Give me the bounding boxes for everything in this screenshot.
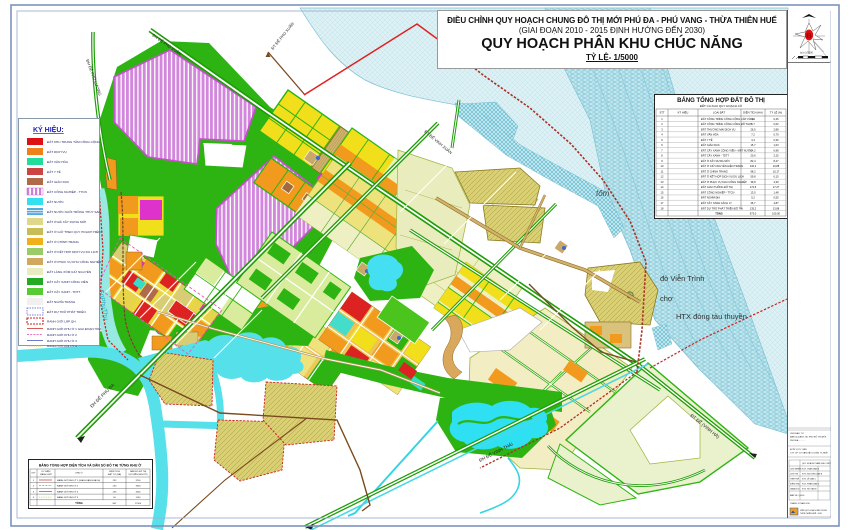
svg-text:0,79: 0,79 (773, 133, 779, 137)
svg-text:3: 3 (33, 491, 35, 493)
svg-text:STT: STT (31, 473, 36, 475)
svg-text:ĐẤT Ở GIỮ THEO QUY HOẠCH HIỆN: ĐẤT Ở GIỮ THEO QUY HOẠCH HIỆN TRẠNG (47, 229, 101, 234)
svg-text:TỔNG: TỔNG (75, 500, 83, 505)
svg-text:16: 16 (661, 196, 664, 200)
svg-text:1,48: 1,48 (773, 190, 779, 194)
svg-text:chợ: chợ (660, 294, 673, 303)
svg-text:5: 5 (661, 138, 663, 142)
svg-text:ĐẤT GIAO THÔNG ĐÔ THỊ: ĐẤT GIAO THÔNG ĐÔ THỊ (701, 184, 733, 189)
svg-text:ĐẤT NƯỚC NUÔI TRỒNG THỦY SẢN: ĐẤT NƯỚC NUÔI TRỒNG THỦY SẢN (47, 209, 101, 214)
svg-text:100,2: 100,2 (750, 164, 757, 168)
svg-text:46,7: 46,7 (750, 201, 756, 205)
svg-text:ĐẤT Ở ĐÃ XÂY DỰNG MỚI: ĐẤT Ở ĐÃ XÂY DỰNG MỚI (47, 219, 86, 224)
svg-text:đò Viễn Trình: đò Viễn Trình (660, 274, 704, 283)
svg-text:THỪA THIÊN HUẾ - 2010: THỪA THIÊN HUẾ - 2010 (800, 512, 822, 515)
svg-text:DIỆN TÍCH: DIỆN TÍCH (109, 470, 120, 473)
svg-text:ĐẤT NƯỚC: ĐẤT NƯỚC (47, 199, 65, 204)
svg-text:ĐẤT Ở CHỈNH TRANG: ĐẤT Ở CHỈNH TRANG (47, 239, 80, 244)
svg-text:5,2: 5,2 (751, 196, 755, 200)
svg-text:8,47: 8,47 (773, 159, 779, 163)
svg-text:8: 8 (661, 154, 663, 158)
svg-text:ĐẤT CÔNG TRÌNH CÔNG CỘNG CẤP V: ĐẤT CÔNG TRÌNH CÔNG CỘNG CẤP VÙNG (701, 116, 754, 121)
svg-text:2,88: 2,88 (773, 127, 779, 131)
svg-text:DỰ KIẾN (NGƯỜI): DỰ KIẾN (NGƯỜI) (129, 473, 148, 476)
svg-text:BẢNG TỔNG HỢP ĐẤT ĐÔ THỊ: BẢNG TỔNG HỢP ĐẤT ĐÔ THỊ (677, 96, 765, 104)
svg-text:RANH GIỚI KHU Ở 1 (GIAI ĐOẠN H: RANH GIỚI KHU Ở 1 (GIAI ĐOẠN HOẠCH) (57, 479, 100, 482)
svg-text:17,27: 17,27 (773, 185, 780, 189)
svg-text:12: 12 (661, 175, 664, 179)
svg-text:ĐẤT CÔNG TRÌNH CÔNG CỘNG ĐÔ TH: ĐẤT CÔNG TRÌNH CÔNG CỘNG ĐÔ THỊN (701, 121, 752, 126)
svg-text:2: 2 (33, 486, 35, 488)
svg-text:7: 7 (661, 148, 663, 152)
svg-text:PHÚ ĐA ... ... ...: PHÚ ĐA ... ... ... (790, 439, 806, 442)
svg-text:0,46: 0,46 (773, 117, 779, 121)
svg-text:20,6: 20,6 (750, 154, 756, 158)
svg-text:2: 2 (661, 122, 663, 126)
svg-text:6,98: 6,98 (773, 148, 779, 152)
svg-text:ĐẤT CÂY XANH CÔNG VIÊN: ĐẤT CÂY XANH CÔNG VIÊN (47, 279, 88, 284)
svg-text:ĐẤT LÀNG XÓM GIỮ NGUYÊN: ĐẤT LÀNG XÓM GIỮ NGUYÊN (47, 269, 91, 274)
svg-text:82,4: 82,4 (750, 159, 756, 163)
svg-text:256: 256 (113, 491, 117, 493)
svg-text:15,7: 15,7 (750, 143, 756, 147)
svg-text:BẢNG TỔNG HỢP DIỆN TÍCH VÀ DÂN: BẢNG TỔNG HỢP DIỆN TÍCH VÀ DÂN SỐ ĐÔ THỊ… (39, 463, 141, 468)
svg-text:ĐẤT Y TẾ: ĐẤT Y TẾ (47, 169, 61, 174)
svg-text:6: 6 (661, 143, 663, 147)
svg-text:ĐẤT Ở KẾT HỢP DỊCH VỤ DU LỊCH: ĐẤT Ở KẾT HỢP DỊCH VỤ DU LỊCH (47, 249, 98, 254)
svg-text:ĐẤT VĂN HÓA: ĐẤT VĂN HÓA (701, 132, 719, 137)
svg-text:GIÁM ĐỐC: GIÁM ĐỐC (790, 488, 801, 491)
svg-text:ĐẤT NGHĨA ĐỊA: ĐẤT NGHĨA ĐỊA (701, 195, 720, 200)
svg-text:ĐẤT CÂY XANH CÔNG VIÊN - MẶT N: ĐẤT CÂY XANH CÔNG VIÊN - MẶT NƯỚC (701, 147, 752, 152)
svg-text:64,2: 64,2 (750, 148, 756, 152)
svg-text:ĐẤT Ở PHỤC VỤ KHU CÔNG NGHIỆP: ĐẤT Ở PHỤC VỤ KHU CÔNG NGHIỆP (47, 259, 101, 264)
svg-text:ĐẤT THƯƠNG MẠI DỊCH VỤ: ĐẤT THƯƠNG MẠI DỊCH VỤ (701, 126, 735, 131)
svg-text:ĐẤT Ở CHỈNH TRANG: ĐẤT Ở CHỈNH TRANG (701, 168, 728, 173)
svg-text:RANH GIỚI KHU Ở 4: RANH GIỚI KHU Ở 4 (57, 496, 79, 499)
svg-text:HTX đóng tàu thuyền: HTX đóng tàu thuyền (676, 312, 747, 321)
svg-text:100,00: 100,00 (772, 212, 780, 216)
svg-text:6,15: 6,15 (773, 175, 779, 179)
svg-text:10: 10 (661, 164, 664, 168)
svg-text:RANH GIỚI KHU Ở 2: RANH GIỚI KHU Ở 2 (47, 332, 77, 337)
svg-text:KÝ HIỆU: KÝ HIỆU (42, 470, 51, 473)
svg-text:4: 4 (33, 497, 35, 499)
svg-text:0,36: 0,36 (773, 138, 779, 142)
svg-text:TỔNG: TỔNG (715, 211, 723, 216)
svg-text:1,63: 1,63 (773, 143, 779, 147)
svg-text:ĐẤT Ở GIỮ NGUYÊN HIỆN TRẠNG: ĐẤT Ở GIỮ NGUYÊN HIỆN TRẠNG (701, 163, 743, 168)
svg-text:B: B (806, 31, 812, 40)
svg-text:11: 11 (661, 169, 664, 173)
svg-text:ĐẤT DỊCH VỤ: ĐẤT DỊCH VỤ (47, 150, 67, 154)
svg-text:KTS. HỒ VĂN E: KTS. HỒ VĂN E (802, 488, 817, 491)
svg-text:CTY CP TƯ VẤN XÂY DỰNG TT-HUẾ: CTY CP TƯ VẤN XÂY DỰNG TT-HUẾ (790, 452, 828, 455)
svg-text:STT: STT (659, 111, 664, 115)
svg-text:252: 252 (113, 480, 117, 482)
svg-text:172,6: 172,6 (750, 185, 757, 189)
svg-text:26,5: 26,5 (750, 127, 756, 131)
svg-text:4,2: 4,2 (751, 117, 755, 121)
svg-text:ĐẤT VĂN HÓA: ĐẤT VĂN HÓA (47, 159, 69, 164)
svg-text:THÁNG 12 NĂM 2010: THÁNG 12 NĂM 2010 (790, 502, 811, 505)
svg-text:3: 3 (661, 127, 663, 131)
svg-text:0,62: 0,62 (773, 122, 779, 126)
svg-text:1: 1 (661, 117, 663, 121)
svg-text:3700: 3700 (136, 480, 142, 482)
svg-text:1100: 1100 (136, 497, 141, 499)
svg-text:KHU Ở: KHU Ở (75, 472, 82, 475)
svg-text:2,25: 2,25 (773, 154, 779, 158)
svg-text:KTS. TRẦN VĂN A: KTS. TRẦN VĂN A (802, 468, 820, 471)
svg-text:RANH GIỚI: RANH GIỚI (40, 473, 52, 476)
svg-text:4,87: 4,87 (773, 201, 779, 205)
svg-text:0,55: 0,55 (773, 196, 779, 200)
svg-text:BẢN VẼ: QH-05: BẢN VẼ: QH-05 (790, 494, 805, 497)
svg-text:230: 230 (113, 486, 117, 488)
svg-text:KÝ HIỆU:: KÝ HIỆU: (33, 125, 64, 134)
svg-text:KÝ HIỆU: KÝ HIỆU (678, 110, 689, 115)
svg-text:RANH GIỚI KHU Ở 2: RANH GIỚI KHU Ở 2 (57, 485, 79, 488)
svg-text:ĐẤT CÂY XANH CÁCH LY: ĐẤT CÂY XANH CÁCH LY (701, 200, 732, 205)
svg-text:ĐẤT CÂY XANH - TDTT: ĐẤT CÂY XANH - TDTT (47, 290, 80, 294)
svg-text:ĐẤT Ở XÂY DỰNG MỚI: ĐẤT Ở XÂY DỰNG MỚI (701, 158, 730, 163)
svg-text:1: 1 (33, 480, 35, 482)
svg-text:ĐẤT GIÁO DỤC: ĐẤT GIÁO DỤC (47, 180, 70, 184)
svg-text:ĐẤT TỰ (HA): ĐẤT TỰ (HA) (108, 473, 121, 476)
svg-text:15: 15 (661, 190, 664, 194)
svg-text:14: 14 (661, 185, 664, 189)
svg-text:CHỦ ĐẦU TƯ: CHỦ ĐẦU TƯ (790, 432, 804, 435)
svg-text:13,88: 13,88 (773, 206, 780, 210)
svg-text:VIỆN QUY HOẠCH XÂY DỰNG: VIỆN QUY HOẠCH XÂY DỰNG (800, 509, 827, 512)
svg-text:KIỂM TRA: KIỂM TRA (790, 483, 800, 486)
svg-text:DÂN SỐ ĐÔ THỊ: DÂN SỐ ĐÔ THỊ (130, 470, 147, 473)
svg-text:TỶ LỆ (%): TỶ LỆ (%) (770, 110, 782, 115)
svg-text:7,2: 7,2 (751, 133, 755, 137)
svg-text:4400: 4400 (136, 491, 142, 493)
svg-text:RANH GIỚI KHU Ở 3: RANH GIỚI KHU Ở 3 (57, 490, 79, 493)
svg-text:DIỆN TÍCH (HA): DIỆN TÍCH (HA) (743, 110, 763, 115)
svg-text:tôm: tôm (596, 189, 610, 198)
svg-text:KTS. PHAN VĂN D: KTS. PHAN VĂN D (802, 483, 820, 486)
svg-text:50: 50 (113, 497, 116, 499)
svg-text:RANH GIỚI KHU Ở 3: RANH GIỚI KHU Ở 3 (47, 338, 77, 343)
svg-text:BAN QLDA ĐT-XD KHU ĐÔ THỊ MỚI: BAN QLDA ĐT-XD KHU ĐÔ THỊ MỚI (790, 436, 827, 439)
svg-text:ĐẤT CÔNG NGHIỆP - TTCN: ĐẤT CÔNG NGHIỆP - TTCN (701, 189, 735, 194)
svg-text:RANH GIỚI KHU Ở 4: RANH GIỚI KHU Ở 4 (47, 344, 77, 348)
svg-text:RANH GIỚI LẬP QH: RANH GIỚI LẬP QH (47, 319, 76, 324)
svg-text:841: 841 (113, 503, 117, 505)
svg-text:CHỦ NHIỆM: CHỦ NHIỆM (790, 468, 802, 471)
svg-text:ĐẤT NGHĨA TRANG: ĐẤT NGHĨA TRANG (47, 299, 76, 304)
svg-text:KTS. NGUYỄN VĂN B: KTS. NGUYỄN VĂN B (802, 473, 823, 476)
svg-text:3,4: 3,4 (751, 138, 755, 142)
svg-text:LOẠI ĐẤT: LOẠI ĐẤT (713, 111, 726, 115)
svg-text:973,0: 973,0 (750, 212, 757, 216)
svg-text:5,7: 5,7 (751, 122, 755, 126)
svg-text:10,17: 10,17 (773, 169, 780, 173)
svg-text:ĐẤT KHU TRUNG TÂM CÔNG CỘNG: ĐẤT KHU TRUNG TÂM CÔNG CỘNG (47, 139, 101, 144)
svg-text:9: 9 (661, 159, 663, 163)
svg-text:17500: 17500 (135, 503, 142, 505)
svg-text:ĐƠN VỊ TƯ VẤN: ĐƠN VỊ TƯ VẤN (790, 448, 807, 451)
svg-text:13: 13 (661, 180, 664, 184)
svg-text:ĐẤT CÔNG NGHIỆP - TTCN: ĐẤT CÔNG NGHIỆP - TTCN (47, 189, 87, 194)
svg-text:3300: 3300 (136, 486, 142, 488)
svg-text:ĐẤT Ở KẾT HỢP DỊCH VỤ DU LỊCH: ĐẤT Ở KẾT HỢP DỊCH VỤ DU LỊCH (701, 174, 744, 179)
svg-text:CHỦ TRÌ: CHỦ TRÌ (790, 473, 799, 476)
svg-text:QUY HOẠCH PHÂN KHU CHỨC NĂNG: QUY HOẠCH PHÂN KHU CHỨC NĂNG (802, 462, 831, 465)
svg-text:ĐẤT Ở PHỤC VỤ KHU CÔNG NGHIỆP: ĐẤT Ở PHỤC VỤ KHU CÔNG NGHIỆP (701, 179, 747, 184)
svg-text:39,8: 39,8 (750, 180, 756, 184)
svg-text:ĐẤT DỰ TRỮ PHÁT TRIỂN: ĐẤT DỰ TRỮ PHÁT TRIỂN (47, 309, 86, 314)
svg-text:ty le 1/5000: ty le 1/5000 (800, 52, 814, 55)
svg-text:17: 17 (661, 201, 664, 205)
svg-text:13,5: 13,5 (750, 190, 756, 194)
svg-text:THIẾT KẾ: THIẾT KẾ (790, 478, 800, 481)
svg-text:ĐẾT CẢ KHU QUY HOẠCH CŨ: ĐẾT CẢ KHU QUY HOẠCH CŨ (700, 103, 742, 108)
svg-text:98,2: 98,2 (750, 169, 756, 173)
svg-text:KTS. LÊ VĂN C: KTS. LÊ VĂN C (802, 478, 817, 481)
svg-text:59,8: 59,8 (750, 175, 756, 179)
svg-text:ĐẤT DỰ TRỮ PHÁT TRIỂN ĐÔ THỊ: ĐẤT DỰ TRỮ PHÁT TRIỂN ĐÔ THỊ (701, 205, 743, 210)
svg-text:4,39: 4,39 (773, 180, 779, 184)
svg-text:18: 18 (661, 206, 664, 210)
svg-text:135,2: 135,2 (750, 206, 757, 210)
svg-text:RANH GIỚI KHU Ở 1 GIAI ĐOẠN HO: RANH GIỚI KHU Ở 1 GIAI ĐOẠN HOẠCH (47, 326, 101, 331)
svg-text:ĐẤT CÂY XANH - TDTT: ĐẤT CÂY XANH - TDTT (701, 153, 729, 158)
svg-text:ĐẤT Y TẾ: ĐẤT Y TẾ (701, 137, 713, 142)
svg-text:4: 4 (661, 133, 663, 137)
svg-text:ĐẤT GIÁO DỤC: ĐẤT GIÁO DỤC (701, 142, 720, 147)
svg-text:10,88: 10,88 (773, 164, 780, 168)
